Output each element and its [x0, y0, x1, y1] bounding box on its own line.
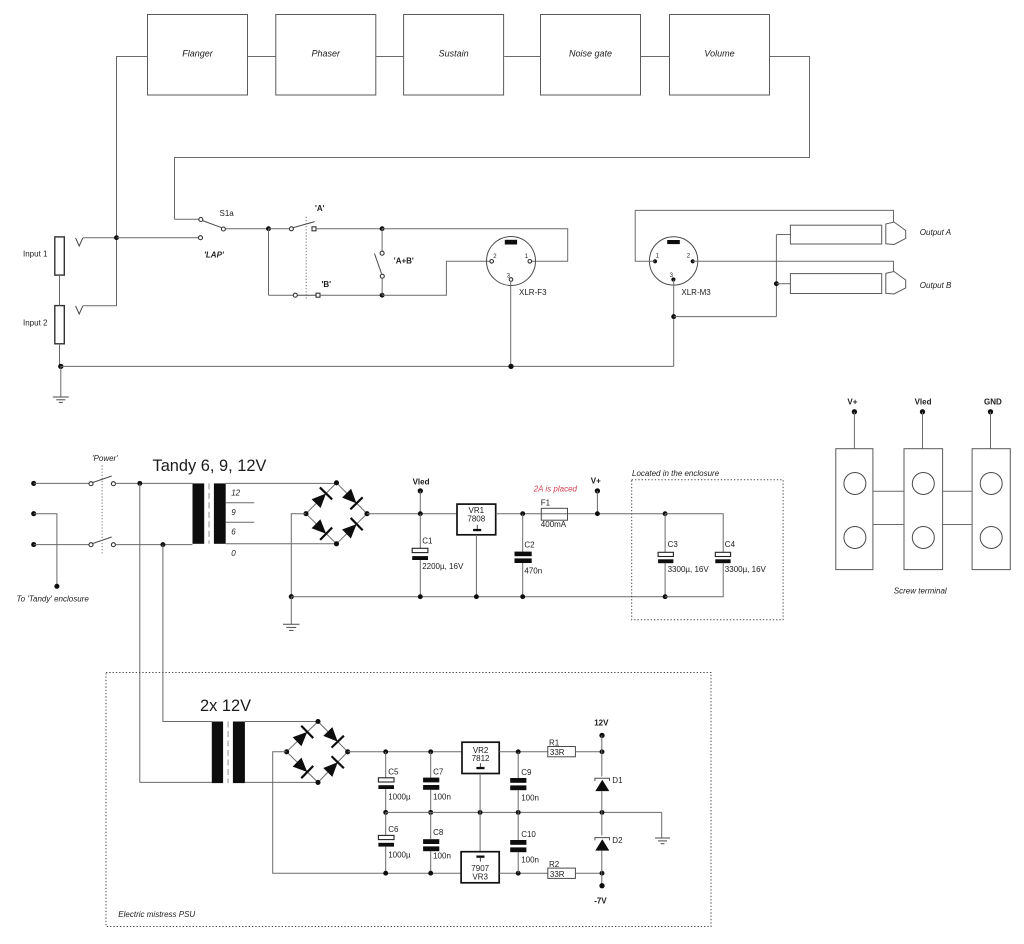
svg-text:Flanger: Flanger — [182, 48, 214, 58]
svg-text:2x 12V: 2x 12V — [200, 697, 251, 715]
svg-text:12V: 12V — [594, 719, 609, 728]
svg-text:C9: C9 — [521, 768, 532, 777]
svg-text:7812: 7812 — [472, 754, 490, 763]
svg-text:Sustain: Sustain — [439, 48, 469, 58]
svg-text:100n: 100n — [433, 793, 451, 802]
svg-text:1000µ: 1000µ — [388, 851, 411, 860]
svg-text:S1a: S1a — [220, 209, 235, 218]
svg-text:'Power': 'Power' — [92, 454, 118, 463]
svg-text:Electric mistress PSU: Electric mistress PSU — [118, 910, 195, 919]
svg-text:470n: 470n — [524, 567, 542, 576]
svg-text:VR3: VR3 — [472, 872, 488, 881]
svg-text:C7: C7 — [433, 767, 444, 776]
svg-text:D2: D2 — [612, 836, 623, 845]
svg-text:Phaser: Phaser — [312, 48, 342, 58]
svg-text:3300µ, 16V: 3300µ, 16V — [668, 565, 710, 574]
svg-text:33R: 33R — [550, 870, 565, 879]
svg-text:-7V: -7V — [594, 897, 607, 906]
svg-text:100n: 100n — [521, 856, 539, 865]
svg-text:XLR-F3: XLR-F3 — [519, 288, 547, 297]
svg-text:100n: 100n — [433, 852, 451, 861]
svg-text:Vled: Vled — [413, 478, 430, 487]
svg-text:D1: D1 — [612, 776, 623, 785]
svg-text:C1: C1 — [422, 536, 433, 545]
svg-text:GND: GND — [984, 398, 1002, 407]
svg-text:12: 12 — [231, 489, 240, 498]
svg-text:Noise gate: Noise gate — [569, 48, 612, 58]
svg-text:Output A: Output A — [920, 228, 951, 237]
svg-text:3300µ, 16V: 3300µ, 16V — [725, 565, 767, 574]
svg-text:XLR-M3: XLR-M3 — [681, 288, 711, 297]
svg-text:'A+B': 'A+B' — [394, 257, 414, 266]
svg-text:Tandy 6, 9, 12V: Tandy 6, 9, 12V — [153, 457, 267, 475]
svg-text:100n: 100n — [521, 794, 539, 803]
svg-text:2A is placed: 2A is placed — [533, 485, 578, 494]
svg-text:'LAP': 'LAP' — [204, 251, 225, 260]
svg-text:C3: C3 — [668, 540, 679, 549]
svg-text:Input 2: Input 2 — [23, 319, 48, 328]
svg-text:7808: 7808 — [467, 514, 485, 523]
svg-text:Located in the enclosure: Located in the enclosure — [632, 469, 720, 478]
svg-text:C5: C5 — [388, 767, 399, 776]
svg-text:To 'Tandy' enclosure: To 'Tandy' enclosure — [17, 595, 90, 604]
svg-text:V+: V+ — [847, 398, 857, 407]
svg-text:6: 6 — [231, 527, 236, 536]
svg-text:Screw terminal: Screw terminal — [894, 587, 947, 596]
svg-text:Vled: Vled — [915, 398, 932, 407]
svg-text:C10: C10 — [521, 830, 536, 839]
svg-text:1000µ: 1000µ — [388, 793, 411, 802]
svg-text:Input 1: Input 1 — [23, 250, 48, 259]
svg-text:C8: C8 — [433, 828, 444, 837]
svg-text:C6: C6 — [388, 825, 399, 834]
svg-text:400mA: 400mA — [541, 520, 567, 529]
svg-text:33R: 33R — [550, 748, 565, 757]
svg-text:F1: F1 — [541, 498, 551, 507]
svg-text:V+: V+ — [591, 477, 601, 486]
svg-text:2200µ, 16V: 2200µ, 16V — [422, 562, 464, 571]
svg-text:C2: C2 — [524, 541, 535, 550]
svg-text:'A': 'A' — [315, 204, 325, 213]
svg-text:C4: C4 — [725, 540, 736, 549]
svg-text:Output B: Output B — [920, 281, 952, 290]
svg-text:0: 0 — [231, 549, 236, 558]
svg-text:Volume: Volume — [704, 48, 734, 58]
svg-text:9: 9 — [231, 508, 236, 517]
svg-text:'B': 'B' — [322, 280, 332, 289]
